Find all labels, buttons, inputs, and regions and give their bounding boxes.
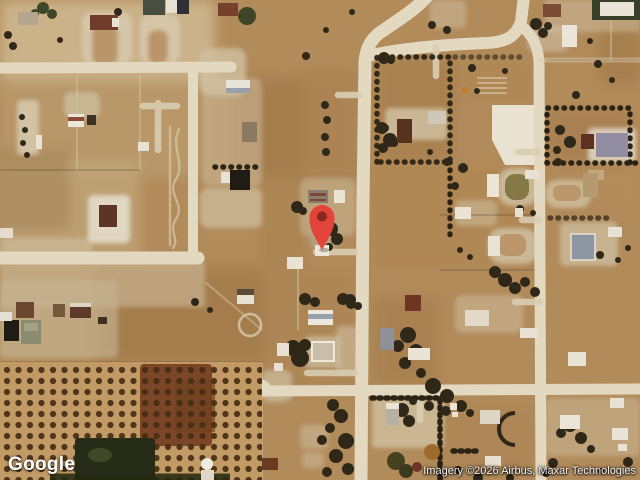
satellite-imagery: [0, 0, 640, 480]
google-logo[interactable]: Google: [8, 454, 75, 476]
map-canvas[interactable]: Google Imagery ©2026 Airbus, Maxar Techn…: [0, 0, 640, 480]
imagery-attribution: Imagery ©2026 Airbus, Maxar Technologies: [423, 465, 636, 477]
pin-hole: [317, 212, 327, 222]
